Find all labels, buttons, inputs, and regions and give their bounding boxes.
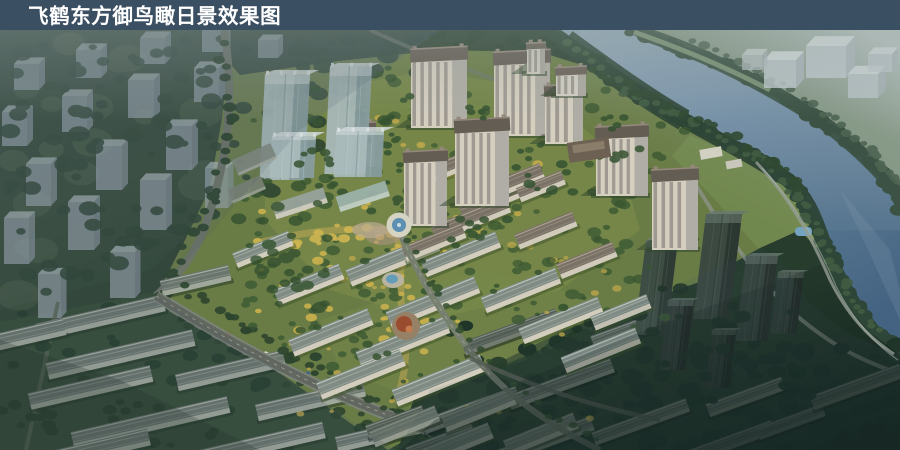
svg-text:飞鹤东方御鸟瞰日景效果图: 飞鹤东方御鸟瞰日景效果图 (28, 4, 281, 28)
